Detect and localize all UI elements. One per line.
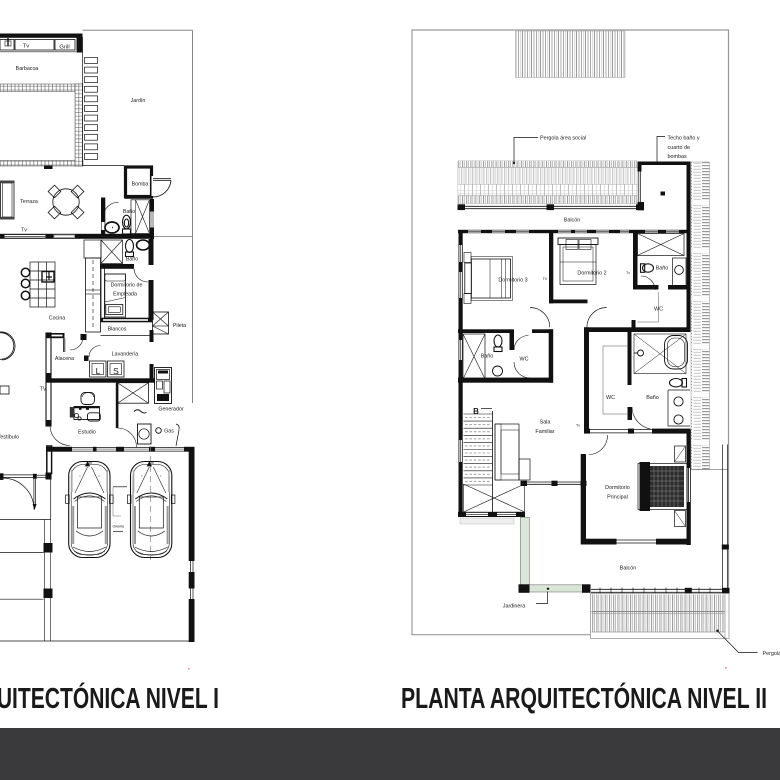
svg-text:Pergola: Pergola — [763, 651, 780, 657]
svg-text:WC: WC — [654, 307, 663, 313]
svg-text:Tv: Tv — [21, 228, 27, 234]
svg-text:Baño: Baño — [656, 266, 669, 272]
svg-text:Baño: Baño — [126, 257, 138, 263]
svg-text:L: L — [96, 366, 101, 376]
svg-text:Bomba: Bomba — [132, 182, 149, 188]
svg-text:Grill: Grill — [59, 45, 69, 51]
svg-text:Alacena: Alacena — [55, 356, 74, 362]
svg-text:Jardinera: Jardinera — [503, 604, 525, 610]
svg-text:Baño: Baño — [646, 395, 659, 401]
svg-text:Principal: Principal — [607, 494, 628, 500]
svg-text:Empleada: Empleada — [113, 292, 137, 298]
svg-text:PLANTA ARQUITECTÓNICA NIVEL II: PLANTA ARQUITECTÓNICA NIVEL II — [401, 681, 767, 715]
svg-text:WC: WC — [520, 357, 529, 363]
svg-text:Baño: Baño — [481, 354, 494, 360]
svg-text:Balcón: Balcón — [564, 218, 580, 224]
svg-text:PLANTA ARQUITECTÓNICA NIVEL I: PLANTA ARQUITECTÓNICA NIVEL I — [0, 681, 219, 715]
svg-text:Familiar: Familiar — [535, 429, 554, 435]
svg-text:Tv: Tv — [23, 44, 30, 50]
svg-text:cuarto de: cuarto de — [668, 145, 690, 151]
svg-text:WC: WC — [606, 395, 615, 401]
svg-text:Vestíbulo: Vestíbulo — [0, 435, 19, 441]
svg-text:Oriente: Oriente — [113, 525, 125, 529]
svg-text:Terraza: Terraza — [20, 199, 38, 205]
svg-text:Dormitorio de: Dormitorio de — [111, 283, 143, 289]
svg-text:Lavandería: Lavandería — [112, 352, 139, 358]
svg-text:Sala: Sala — [540, 420, 551, 426]
svg-text:Gas: Gas — [164, 429, 174, 435]
svg-text:Pileta: Pileta — [173, 323, 186, 329]
svg-text:Jardín: Jardín — [131, 98, 146, 104]
svg-text:Techo baño y: Techo baño y — [668, 136, 700, 142]
svg-text:Pergola área social: Pergola área social — [540, 136, 586, 142]
svg-text:Generador: Generador — [158, 407, 184, 413]
svg-text:Balcón: Balcón — [620, 566, 636, 572]
svg-text:Dormitorio 3: Dormitorio 3 — [498, 278, 527, 284]
svg-text:Blancos: Blancos — [108, 327, 127, 333]
svg-text:TV: TV — [40, 387, 47, 393]
svg-text:TV: TV — [543, 277, 548, 281]
svg-text:Baño: Baño — [123, 209, 135, 215]
svg-text:Tv: Tv — [626, 271, 630, 275]
svg-text:Tv: Tv — [576, 424, 580, 428]
svg-text:Cocina: Cocina — [49, 316, 66, 322]
svg-text:B: B — [473, 407, 479, 416]
svg-text:Dormitorio 2: Dormitorio 2 — [577, 271, 606, 277]
svg-text:Dormitorio: Dormitorio — [605, 485, 630, 491]
svg-text:Estudio: Estudio — [78, 430, 96, 436]
svg-text:bombas: bombas — [668, 154, 687, 160]
svg-text:S: S — [113, 366, 119, 376]
svg-text:Barbacoa: Barbacoa — [16, 66, 39, 72]
